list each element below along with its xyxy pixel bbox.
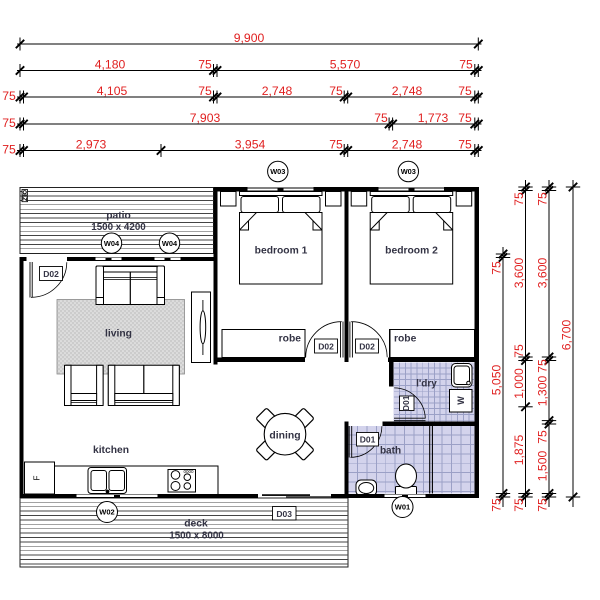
svg-text:W03: W03 bbox=[401, 167, 416, 176]
svg-text:3,954: 3,954 bbox=[235, 138, 266, 152]
svg-text:2,748: 2,748 bbox=[262, 84, 293, 98]
svg-text:D02: D02 bbox=[359, 342, 375, 352]
svg-text:75: 75 bbox=[374, 111, 388, 125]
svg-text:75: 75 bbox=[536, 359, 550, 373]
svg-text:75: 75 bbox=[458, 84, 472, 98]
svg-text:75: 75 bbox=[2, 116, 16, 130]
svg-text:F: F bbox=[32, 475, 41, 480]
svg-text:robe: robe bbox=[279, 334, 302, 345]
svg-text:75: 75 bbox=[536, 498, 550, 512]
svg-text:robe: robe bbox=[394, 334, 417, 345]
svg-text:bedroom 2: bedroom 2 bbox=[385, 246, 438, 257]
svg-text:W02: W02 bbox=[99, 508, 114, 517]
svg-text:1,300: 1,300 bbox=[536, 376, 550, 407]
svg-text:75: 75 bbox=[2, 89, 16, 103]
svg-text:75: 75 bbox=[459, 58, 473, 72]
svg-text:75: 75 bbox=[490, 498, 504, 512]
svg-text:D01: D01 bbox=[360, 435, 376, 445]
svg-text:5,570: 5,570 bbox=[330, 58, 361, 72]
svg-text:W03: W03 bbox=[270, 167, 285, 176]
svg-text:deck: deck bbox=[184, 519, 208, 530]
svg-text:3,600: 3,600 bbox=[512, 258, 526, 289]
svg-text:l'dry: l'dry bbox=[416, 379, 437, 390]
svg-text:D02: D02 bbox=[43, 269, 59, 279]
svg-text:4,105: 4,105 bbox=[97, 84, 128, 98]
svg-text:D01: D01 bbox=[401, 395, 411, 411]
svg-text:bedroom 1: bedroom 1 bbox=[255, 246, 308, 257]
svg-text:9,900: 9,900 bbox=[234, 31, 265, 45]
svg-text:2,748: 2,748 bbox=[392, 138, 423, 152]
svg-text:W01: W01 bbox=[395, 503, 410, 512]
svg-text:kitchen: kitchen bbox=[93, 445, 129, 456]
svg-text:bath: bath bbox=[380, 446, 401, 457]
svg-text:W04: W04 bbox=[162, 239, 178, 248]
svg-text:3,600: 3,600 bbox=[536, 258, 550, 289]
svg-text:75: 75 bbox=[458, 111, 472, 125]
svg-text:W: W bbox=[456, 396, 466, 405]
svg-text:75: 75 bbox=[329, 84, 343, 98]
svg-text:75: 75 bbox=[458, 138, 472, 152]
svg-text:4,180: 4,180 bbox=[95, 58, 126, 72]
svg-text:dining: dining bbox=[269, 431, 300, 442]
svg-text:6,700: 6,700 bbox=[560, 320, 574, 351]
svg-text:75: 75 bbox=[512, 498, 526, 512]
svg-text:patio: patio bbox=[106, 211, 131, 222]
svg-text:75: 75 bbox=[490, 261, 504, 275]
svg-text:1,500: 1,500 bbox=[536, 451, 550, 482]
svg-text:75: 75 bbox=[198, 84, 212, 98]
svg-text:75: 75 bbox=[536, 430, 550, 444]
svg-text:1500 x 4200: 1500 x 4200 bbox=[91, 222, 146, 233]
svg-text:D03: D03 bbox=[276, 509, 292, 519]
svg-text:1,875: 1,875 bbox=[512, 435, 526, 466]
svg-text:7,903: 7,903 bbox=[190, 111, 221, 125]
svg-text:75: 75 bbox=[2, 143, 16, 157]
svg-text:1,000: 1,000 bbox=[512, 368, 526, 399]
svg-text:W04: W04 bbox=[104, 239, 120, 248]
svg-text:1500 x 8000: 1500 x 8000 bbox=[169, 531, 224, 542]
svg-text:75: 75 bbox=[198, 58, 212, 72]
svg-text:living: living bbox=[105, 329, 132, 340]
svg-text:D02: D02 bbox=[318, 342, 334, 352]
svg-text:75: 75 bbox=[536, 192, 550, 206]
svg-text:0000: 0000 bbox=[183, 469, 194, 474]
svg-text:75: 75 bbox=[512, 192, 526, 206]
svg-text:75: 75 bbox=[512, 344, 526, 358]
svg-text:5,050: 5,050 bbox=[490, 365, 504, 396]
svg-text:1,773: 1,773 bbox=[418, 111, 449, 125]
svg-text:75: 75 bbox=[329, 138, 343, 152]
svg-text:2,973: 2,973 bbox=[76, 138, 107, 152]
svg-text:2,748: 2,748 bbox=[392, 84, 423, 98]
